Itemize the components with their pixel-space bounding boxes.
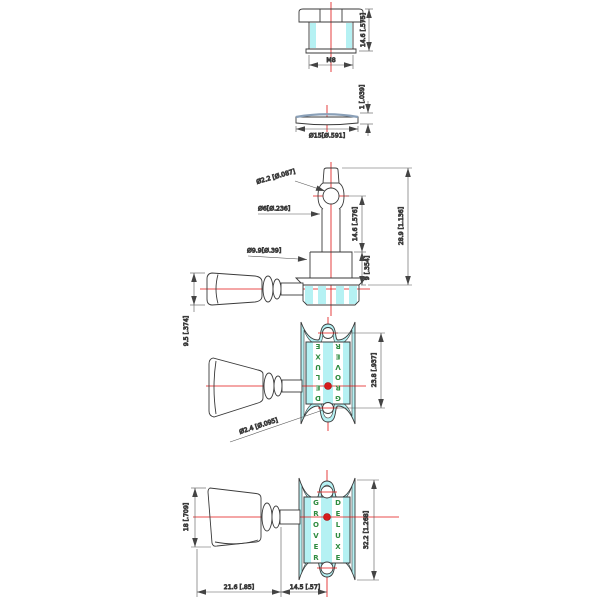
front-collar-inner xyxy=(274,376,282,396)
button-collar-inner xyxy=(273,279,281,299)
drawing-canvas: 14.6 [.575] M8 1 [.039] Ø15[Ø.591] xyxy=(0,0,600,600)
bushing-view: 14.6 [.575] M8 xyxy=(299,2,373,72)
post-height-label: 14.6 [.576] xyxy=(352,207,359,241)
post-diameter-label: Ø6[Ø.236] xyxy=(258,205,290,213)
side-elevation-view: Ø2.2 [Ø.087] Ø6[Ø.236] Ø9.9[Ø.39] 14.6 [… xyxy=(183,162,412,346)
housing-flange xyxy=(296,278,366,285)
string-hole xyxy=(323,188,339,204)
front-collar-outer xyxy=(264,373,274,399)
button-collar-outer xyxy=(263,276,273,302)
button-thickness-dimension xyxy=(190,273,205,312)
front-plate-left-brand-text: DELUXE xyxy=(313,344,323,402)
bushing-thread-label: M8 xyxy=(326,57,335,64)
bottom-button-contour xyxy=(215,540,258,544)
washer-diameter-label: Ø15[Ø.591] xyxy=(309,132,345,140)
screw-hole-label: Ø2.4 [Ø.095] xyxy=(238,416,279,436)
total-height-label: 28.9 [1.136] xyxy=(398,207,405,245)
base-diameter-label: Ø9.9[Ø.39] xyxy=(247,247,281,255)
washer-thickness-label: 1 [.039] xyxy=(359,85,366,110)
bushing-height-label: 14.6 [.575] xyxy=(360,13,367,47)
washer-body xyxy=(296,117,358,125)
bottom-plate-right-brand-text: DELUXE xyxy=(333,499,343,561)
washer-view: 1 [.039] Ø15[Ø.591] xyxy=(296,85,373,140)
front-plate-right-brand-text: GROVER xyxy=(333,344,343,402)
worm-shaft xyxy=(281,283,303,295)
front-button-contour xyxy=(214,361,216,414)
bushing-highlight-right xyxy=(346,23,352,48)
plate-length-label: 32.2 [1.268] xyxy=(363,511,370,549)
button-thickness-label: 9.5 [.374] xyxy=(183,316,190,346)
hole-diameter-label: Ø2.2 [Ø.087] xyxy=(255,167,296,186)
base-height-label: 9 [.354] xyxy=(364,256,371,281)
technical-drawing: 14.6 [.575] M8 1 [.039] Ø15[Ø.591] xyxy=(0,0,600,600)
button-width-label: 18 [.709] xyxy=(183,503,190,531)
bushing-highlight-left xyxy=(310,23,316,48)
bottom-shaft xyxy=(280,510,300,524)
bottom-plate-left-brand-text: GROVER xyxy=(311,499,321,561)
front-shaft xyxy=(282,380,302,392)
button-length-label: 21.6 [.85] xyxy=(224,584,254,591)
center-offset-label: 14.5 [.57] xyxy=(290,584,320,591)
hole-spacing-label: 23.8 [.937] xyxy=(371,353,378,387)
bottom-collar-inner xyxy=(272,506,280,528)
bottom-collar-outer xyxy=(262,503,272,531)
front-view: Ø2.4 [Ø.095] 23.8 [.937] xyxy=(206,317,385,442)
screw-hole-leader xyxy=(230,410,323,442)
front-button xyxy=(209,358,263,417)
bottom-view: 18 [.709] 32.2 [1.268] 21.6 [.85] 14.5 [… xyxy=(183,470,399,597)
